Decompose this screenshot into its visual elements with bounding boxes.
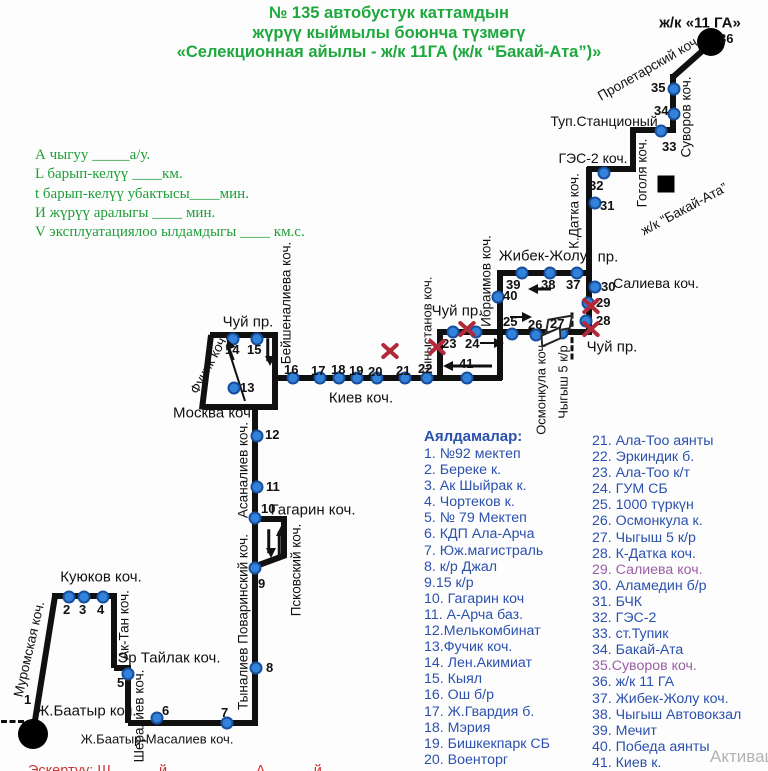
closed-stop-x-mark — [426, 336, 448, 358]
street-label: Эр Тайлак коч. — [117, 650, 220, 667]
map-stop-number-27: 27 — [550, 316, 564, 331]
stop-list-item: 22. Эркиндик б. — [592, 449, 741, 465]
route-segment — [587, 166, 636, 172]
street-label: Ж.Баатыр-Масалиев коч. — [81, 732, 234, 747]
stop-list-item: 1. №92 мектеп — [424, 446, 550, 462]
street-label: Чыгыш 5 к/р — [556, 345, 571, 419]
stop-list-item: 34. Бакай-Ата — [592, 642, 741, 658]
map-stop-number-3: 3 — [79, 602, 86, 617]
map-stop-number-8: 8 — [266, 660, 273, 675]
map-stop-number-9: 9 — [258, 576, 265, 591]
map-stop-number-13: 13 — [240, 380, 254, 395]
map-stop-number-18: 18 — [331, 362, 345, 377]
stop-list-item: 33. ст.Тупик — [592, 626, 741, 642]
stop-list-item: 9.15 к/р — [424, 575, 550, 591]
map-stop-number-32: 32 — [589, 178, 603, 193]
stop-list-item: 28. К-Датка коч. — [592, 546, 741, 562]
stop-list-item: 37. Жибек-Жолу коч. — [592, 691, 741, 707]
stop-list-item: 25. 1000 түркүн — [592, 497, 741, 513]
map-stop-8 — [250, 662, 263, 675]
stop-list-item: 13.Фучик коч. — [424, 639, 550, 655]
map-stop-11 — [251, 481, 264, 494]
map-stop-number-21: 21 — [396, 363, 410, 378]
stop-list-item: 29. Салиева коч. — [592, 562, 741, 578]
stop-list-item: 14. Лен.Акимиат — [424, 655, 550, 671]
street-label: Москва коч. — [173, 405, 255, 422]
map-stop-13 — [228, 382, 241, 395]
closed-stop-x-mark — [580, 295, 602, 317]
map-stop-41 — [461, 372, 474, 385]
stop-list-item: 16. Ош б/р — [424, 687, 550, 703]
stop-list-item: 23. Ала-Тоо к/т — [592, 465, 741, 481]
street-label: Киев коч. — [329, 390, 393, 407]
street-label: Чуй пр. — [587, 339, 638, 356]
street-label: Чуй пр. — [223, 314, 274, 331]
stop-list-item: 2. Береке к. — [424, 462, 550, 478]
map-stop-number-35: 35 — [651, 80, 665, 95]
map-stop-number-2: 2 — [63, 602, 70, 617]
street-label: Тыналиев Поваринский коч. — [236, 534, 251, 710]
footnote-clipped-red-text: Эскертуу: Ш............й ...............… — [28, 763, 648, 771]
bus-route-scheme-135: № 135 автобустук каттамдын жүрүү кыймылы… — [0, 0, 768, 771]
map-stop-number-11: 11 — [266, 479, 280, 494]
map-stop-number-34: 34 — [654, 103, 668, 118]
stop-list-item: 19. Бишкекпарк СБ — [424, 736, 550, 752]
map-stop-number-12: 12 — [265, 427, 279, 442]
street-label: пр. — [598, 249, 619, 266]
map-stop-9 — [249, 562, 262, 575]
street-label: ГЭС-2 коч. — [558, 150, 627, 166]
stop-list-item: 26. Осмонкула к. — [592, 513, 741, 529]
route-segment — [128, 720, 258, 726]
stop-list-item: 31. БЧК — [592, 594, 741, 610]
map-stop-number-36: 36 — [719, 31, 733, 46]
map-stop-number-17: 17 — [311, 363, 325, 378]
stop-list-item: 24. ГУМ СБ — [592, 481, 741, 497]
stops-list-column-1: 1. №92 мектеп2. Береке к.3. Ак Шыйрак к.… — [424, 446, 550, 768]
map-stop-number-15: 15 — [247, 342, 261, 357]
map-stop-number-40: 40 — [503, 288, 517, 303]
map-stop-number-10: 10 — [261, 501, 275, 516]
street-label: Куюков коч. — [60, 569, 141, 586]
street-label: Гоголя коч. — [635, 139, 650, 208]
street-label: Чуй пр. — [432, 303, 483, 320]
map-stop-number-41: 41 — [459, 356, 473, 371]
direction-arrow-head — [443, 361, 453, 371]
stop-list-item: 35.Суворов коч. — [592, 658, 741, 674]
map-stop-number-38: 38 — [541, 277, 555, 292]
stop-list-item: 4. Чортеков к. — [424, 494, 550, 510]
map-stop-25 — [506, 328, 519, 341]
street-label: К.Датка коч. — [567, 173, 582, 249]
map-stop-number-30: 30 — [601, 279, 615, 294]
map-stop-35 — [668, 83, 681, 96]
street-label: Жибек-Жолу — [499, 248, 588, 265]
map-stop-number-7: 7 — [221, 705, 228, 720]
stop-list-item: 18. Мэрия — [424, 720, 550, 736]
map-stop-34 — [668, 108, 681, 121]
street-label: Суворов коч. — [679, 76, 694, 157]
street-label: Туп.Станционый — [550, 113, 657, 129]
stop-list-item: 38. Чыгыш Автовокзал — [592, 707, 741, 723]
street-label: Ж.Баатыр коч. — [35, 703, 136, 720]
street-label: ж/к «11 ГА» — [659, 15, 741, 32]
street-label: Асаналиев коч. — [236, 422, 251, 518]
stop-list-item: 39. Мечит — [592, 723, 741, 739]
activation-watermark: Активаци — [710, 747, 768, 767]
closed-stop-x-mark — [456, 318, 478, 340]
map-stop-number-25: 25 — [503, 314, 517, 329]
map-stop-number-19: 19 — [349, 363, 363, 378]
street-label: Бейшеналиева коч. — [279, 242, 294, 364]
map-stop-number-22: 22 — [418, 361, 432, 376]
closed-stop-x-mark — [580, 318, 602, 340]
stop-list-item: 6. КДП Ала-Арча — [424, 526, 550, 542]
map-stop-number-4: 4 — [97, 602, 104, 617]
map-stop-number-1: 1 — [24, 692, 31, 707]
direction-arrow-head — [266, 548, 276, 558]
stop-list-item: 36. ж/к 11 ГА — [592, 674, 741, 690]
stop-list-item: 7. Юж.магистраль — [424, 543, 550, 559]
terminal-terminus-zh-baatyr — [18, 719, 48, 749]
stop-list-item: 3. Ак Шыйрак к. — [424, 478, 550, 494]
map-stop-number-6: 6 — [162, 703, 169, 718]
stop-list-item: 10. Гагарин коч — [424, 591, 550, 607]
map-stop-number-5: 5 — [117, 675, 124, 690]
street-label: Осмонкула коч. — [534, 341, 549, 435]
map-stop-number-37: 37 — [566, 277, 580, 292]
street-label: Гагарин коч. — [270, 502, 355, 519]
stop-list-item: 27. Чыгыш 5 к/р — [592, 530, 741, 546]
stop-list-item: 15. Кыял — [424, 671, 550, 687]
direction-arrow-head — [265, 356, 275, 366]
map-stop-number-31: 31 — [600, 198, 614, 213]
stop-list-item: 5. № 79 Мектеп — [424, 510, 550, 526]
direction-arrow-head — [522, 312, 532, 322]
street-label: Салиева коч. — [613, 275, 699, 291]
stops-list-column-2: 21. Ала-Тоо аянты22. Эркиндик б.23. Ала-… — [592, 433, 741, 771]
map-stop-number-20: 20 — [368, 364, 382, 379]
map-stop-30 — [589, 281, 602, 294]
map-stop-33 — [655, 125, 668, 138]
stop-list-item: 30. Аламедин б/р — [592, 578, 741, 594]
stop-list-item: 8. к/р Джал — [424, 559, 550, 575]
stop-list-item: 17. Ж.Гвардия б. — [424, 704, 550, 720]
stop-list-item: 12.Мелькомбинат — [424, 623, 550, 639]
direction-arrow-head — [528, 284, 538, 294]
route-segment — [272, 335, 278, 410]
map-stop-10 — [249, 512, 262, 525]
street-label: ж/к “Бакай-Ата” — [638, 180, 730, 238]
map-stop-number-16: 16 — [284, 362, 298, 377]
map-stop-12 — [251, 430, 264, 443]
direction-arrow-head — [494, 338, 504, 348]
street-label: Псковский коч. — [289, 524, 304, 617]
stop-list-item: 32. ГЭС-2 — [592, 610, 741, 626]
closed-stop-x-mark — [379, 340, 401, 362]
direction-arrow-head — [276, 526, 286, 536]
terminal-bakai-ata-marker — [658, 176, 675, 193]
street-dashed-line — [1, 720, 24, 723]
stop-list-item: 21. Ала-Тоо аянты — [592, 433, 741, 449]
stop-list-item: 11. А-Арча баз. — [424, 607, 550, 623]
stops-list-heading: Аялдамалар: — [424, 428, 522, 445]
map-stop-number-33: 33 — [662, 139, 676, 154]
